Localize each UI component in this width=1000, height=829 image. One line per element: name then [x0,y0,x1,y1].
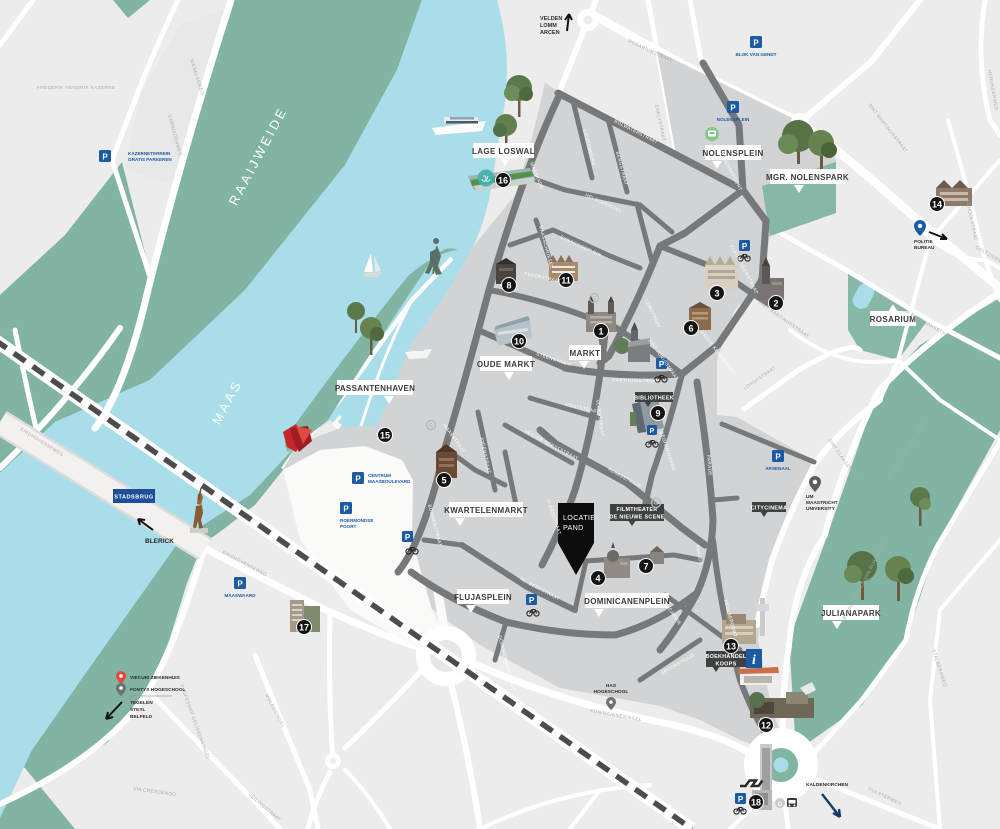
svg-text:5: 5 [441,476,446,486]
svg-text:MARKT: MARKT [570,349,601,358]
svg-text:8: 8 [506,281,511,291]
svg-text:HOGESCHOOL: HOGESCHOOL [594,689,629,695]
svg-text:CENTRUM: CENTRUM [368,473,391,478]
svg-text:P: P [730,104,736,113]
svg-text:CITYCINEMA: CITYCINEMA [751,506,788,512]
svg-text:BLOK VAN GENDT: BLOK VAN GENDT [735,52,776,57]
svg-text:TEGELEN: TEGELEN [130,700,153,706]
svg-text:UM: UM [806,494,813,500]
svg-text:16: 16 [498,176,508,186]
svg-text:P: P [775,453,781,462]
svg-text:ARCEN: ARCEN [540,30,560,36]
svg-text:ROERMONDSE: ROERMONDSE [340,518,373,523]
svg-text:1: 1 [598,327,603,337]
svg-text:KALDENKIRCHEN: KALDENKIRCHEN [806,782,848,788]
svg-text:POORT: POORT [340,524,357,529]
svg-text:13: 13 [726,642,736,652]
svg-text:LAGE LOSWAL: LAGE LOSWAL [472,147,535,156]
svg-text:FONTYS HOGESCHOOL: FONTYS HOGESCHOOL [130,687,186,693]
svg-text:VIECURI ZIEKENHUIS: VIECURI ZIEKENHUIS [130,675,181,681]
svg-text:P: P [742,242,748,251]
svg-text:9: 9 [655,409,660,419]
svg-text:BELFELD: BELFELD [130,714,153,720]
svg-text:P: P [343,505,349,514]
svg-text:2: 2 [773,299,778,309]
svg-text:KOOPS: KOOPS [716,662,737,668]
svg-text:G: G [592,296,596,302]
svg-text:NOLENSPLEIN: NOLENSPLEIN [702,149,763,158]
svg-text:12: 12 [761,721,771,731]
svg-text:PAND: PAND [563,523,584,532]
svg-text:17: 17 [299,623,309,633]
svg-text:4: 4 [595,574,600,584]
svg-text:G: G [778,802,783,808]
svg-text:STEYL: STEYL [130,707,146,713]
svg-text:P: P [753,39,759,48]
svg-text:MAASBOULEVARD: MAASBOULEVARD [368,479,411,484]
svg-text:14: 14 [932,200,942,210]
svg-text:BLERICK: BLERICK [145,538,174,545]
svg-text:P: P [529,596,535,605]
svg-text:P: P [355,475,361,484]
svg-text:POLITIE: POLITIE [914,239,933,245]
svg-text:MAASWAARD: MAASWAARD [225,593,257,598]
svg-text:LOMM: LOMM [540,23,557,29]
svg-text:18: 18 [751,798,761,808]
svg-text:UNIVERSITY: UNIVERSITY [806,506,836,512]
svg-text:G: G [429,423,433,429]
svg-text:P: P [738,795,744,804]
svg-text:ROSARIUM: ROSARIUM [870,315,917,324]
svg-text:BUREAU: BUREAU [914,245,935,251]
svg-text:LOCATIE: LOCATIE [563,513,595,522]
svg-text:P: P [405,533,411,542]
svg-text:OUDE MARKT: OUDE MARKT [477,360,535,369]
svg-text:GRATIS PARKEREN: GRATIS PARKEREN [128,157,172,162]
svg-text:KAZERNETERREIN: KAZERNETERREIN [128,151,171,156]
svg-text:P: P [102,153,108,162]
svg-text:G: G [654,501,658,507]
svg-text:P: P [650,428,655,435]
svg-text:P: P [237,580,243,589]
svg-text:11: 11 [561,276,571,286]
svg-text:MGR. NOLENSPARK: MGR. NOLENSPARK [766,173,849,182]
svg-text:6: 6 [688,324,693,334]
svg-text:PASSANTENHAVEN: PASSANTENHAVEN [335,384,415,393]
svg-text:STADSBRUG: STADSBRUG [114,495,154,501]
svg-text:15: 15 [380,431,390,441]
svg-text:VELDEN: VELDEN [540,16,562,22]
svg-text:BIBLIOTHEEK: BIBLIOTHEEK [634,396,674,402]
svg-text:FLUJASPLEIN: FLUJASPLEIN [454,593,512,602]
svg-text:10: 10 [514,337,524,347]
svg-text:MAASTRICHT: MAASTRICHT [806,500,838,506]
svg-text:BOEKHANDEL: BOEKHANDEL [705,654,746,660]
svg-text:FREDERIK HENDRIK KAZERNE: FREDERIK HENDRIK KAZERNE [37,85,115,91]
svg-text:FILMTHEATER: FILMTHEATER [617,507,658,513]
svg-text:3: 3 [714,289,719,299]
svg-text:i: i [752,653,756,668]
svg-text:ARSENAAL: ARSENAAL [765,466,791,471]
svg-text:7: 7 [643,562,648,572]
svg-text:HAS: HAS [606,683,617,689]
svg-text:DOMINICANENPLEIN: DOMINICANENPLEIN [584,597,670,606]
svg-text:KWARTELENMARKT: KWARTELENMARKT [444,506,528,515]
svg-text:NOLENSPLEIN: NOLENSPLEIN [717,117,750,122]
svg-text:DE NIEUWE SCENE: DE NIEUWE SCENE [609,515,664,521]
